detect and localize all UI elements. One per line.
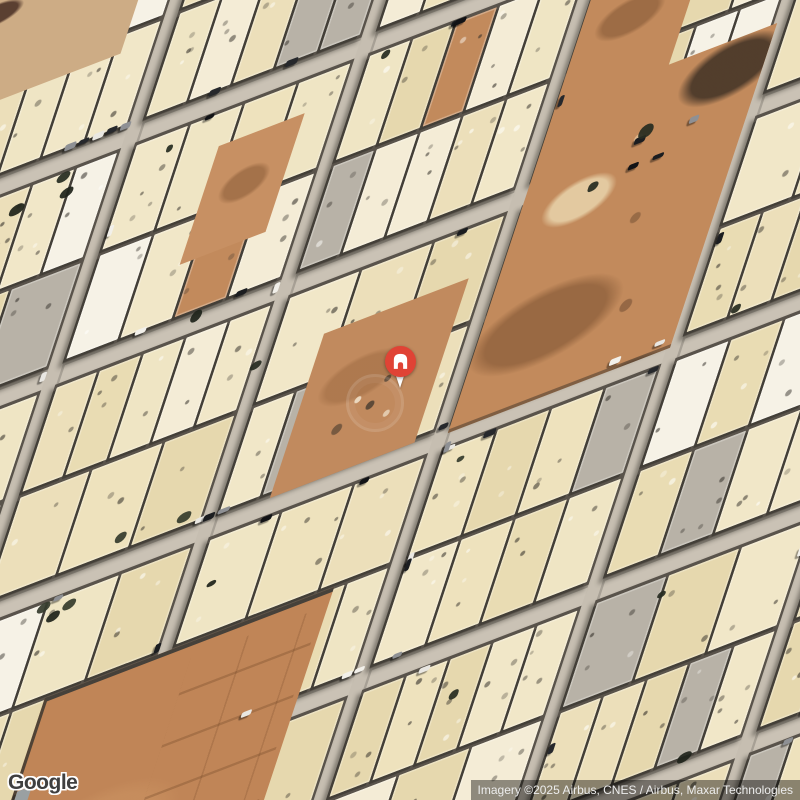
satellite-map[interactable]: Google Imagery ©2025 Airbus, CNES / Airb… [0,0,800,800]
home-icon [391,352,410,371]
attribution-text: Imagery ©2025 Airbus, CNES / Airbus, Max… [478,783,793,797]
attribution-bar: Imagery ©2025 Airbus, CNES / Airbus, Max… [471,780,800,800]
satellite-imagery [0,0,800,800]
map-grid [0,0,800,800]
marker-circle [385,346,416,377]
google-logo[interactable]: Google [8,771,77,795]
